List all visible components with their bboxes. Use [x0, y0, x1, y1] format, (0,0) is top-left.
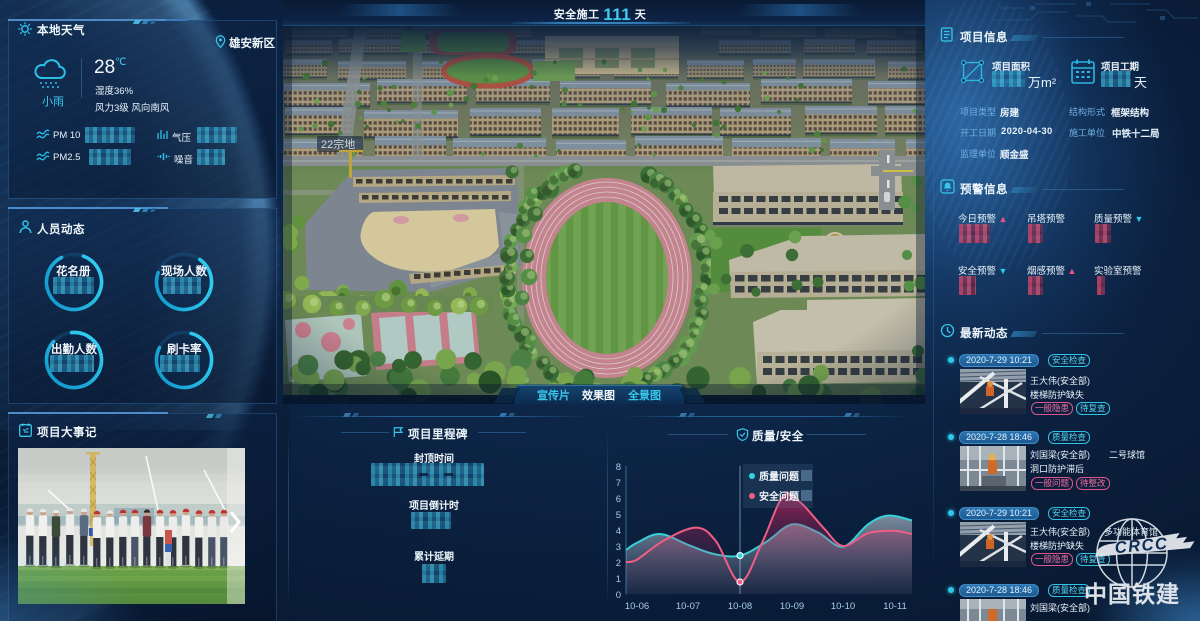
svg-text:6: 6 [616, 494, 621, 505]
svg-text:10-11: 10-11 [883, 601, 907, 612]
svg-text:10-07: 10-07 [676, 601, 700, 612]
svg-text:10-08: 10-08 [728, 601, 752, 612]
svg-text:CRCC: CRCC [1114, 535, 1169, 558]
svg-text:10-06: 10-06 [625, 601, 649, 612]
svg-text:0: 0 [616, 590, 621, 601]
svg-text:1: 1 [616, 574, 621, 585]
svg-text:10-10: 10-10 [831, 601, 855, 612]
svg-text:8: 8 [616, 462, 621, 473]
svg-text:4: 4 [616, 526, 621, 537]
svg-text:5: 5 [616, 510, 621, 521]
svg-text:安全问题: 安全问题 [759, 490, 800, 503]
svg-text:2: 2 [616, 558, 621, 569]
svg-text:10-09: 10-09 [780, 601, 804, 612]
svg-text:7: 7 [616, 478, 621, 489]
svg-text:质量问题: 质量问题 [759, 470, 800, 483]
svg-text:中国铁建: 中国铁建 [1084, 581, 1180, 607]
svg-text:3: 3 [616, 542, 621, 553]
